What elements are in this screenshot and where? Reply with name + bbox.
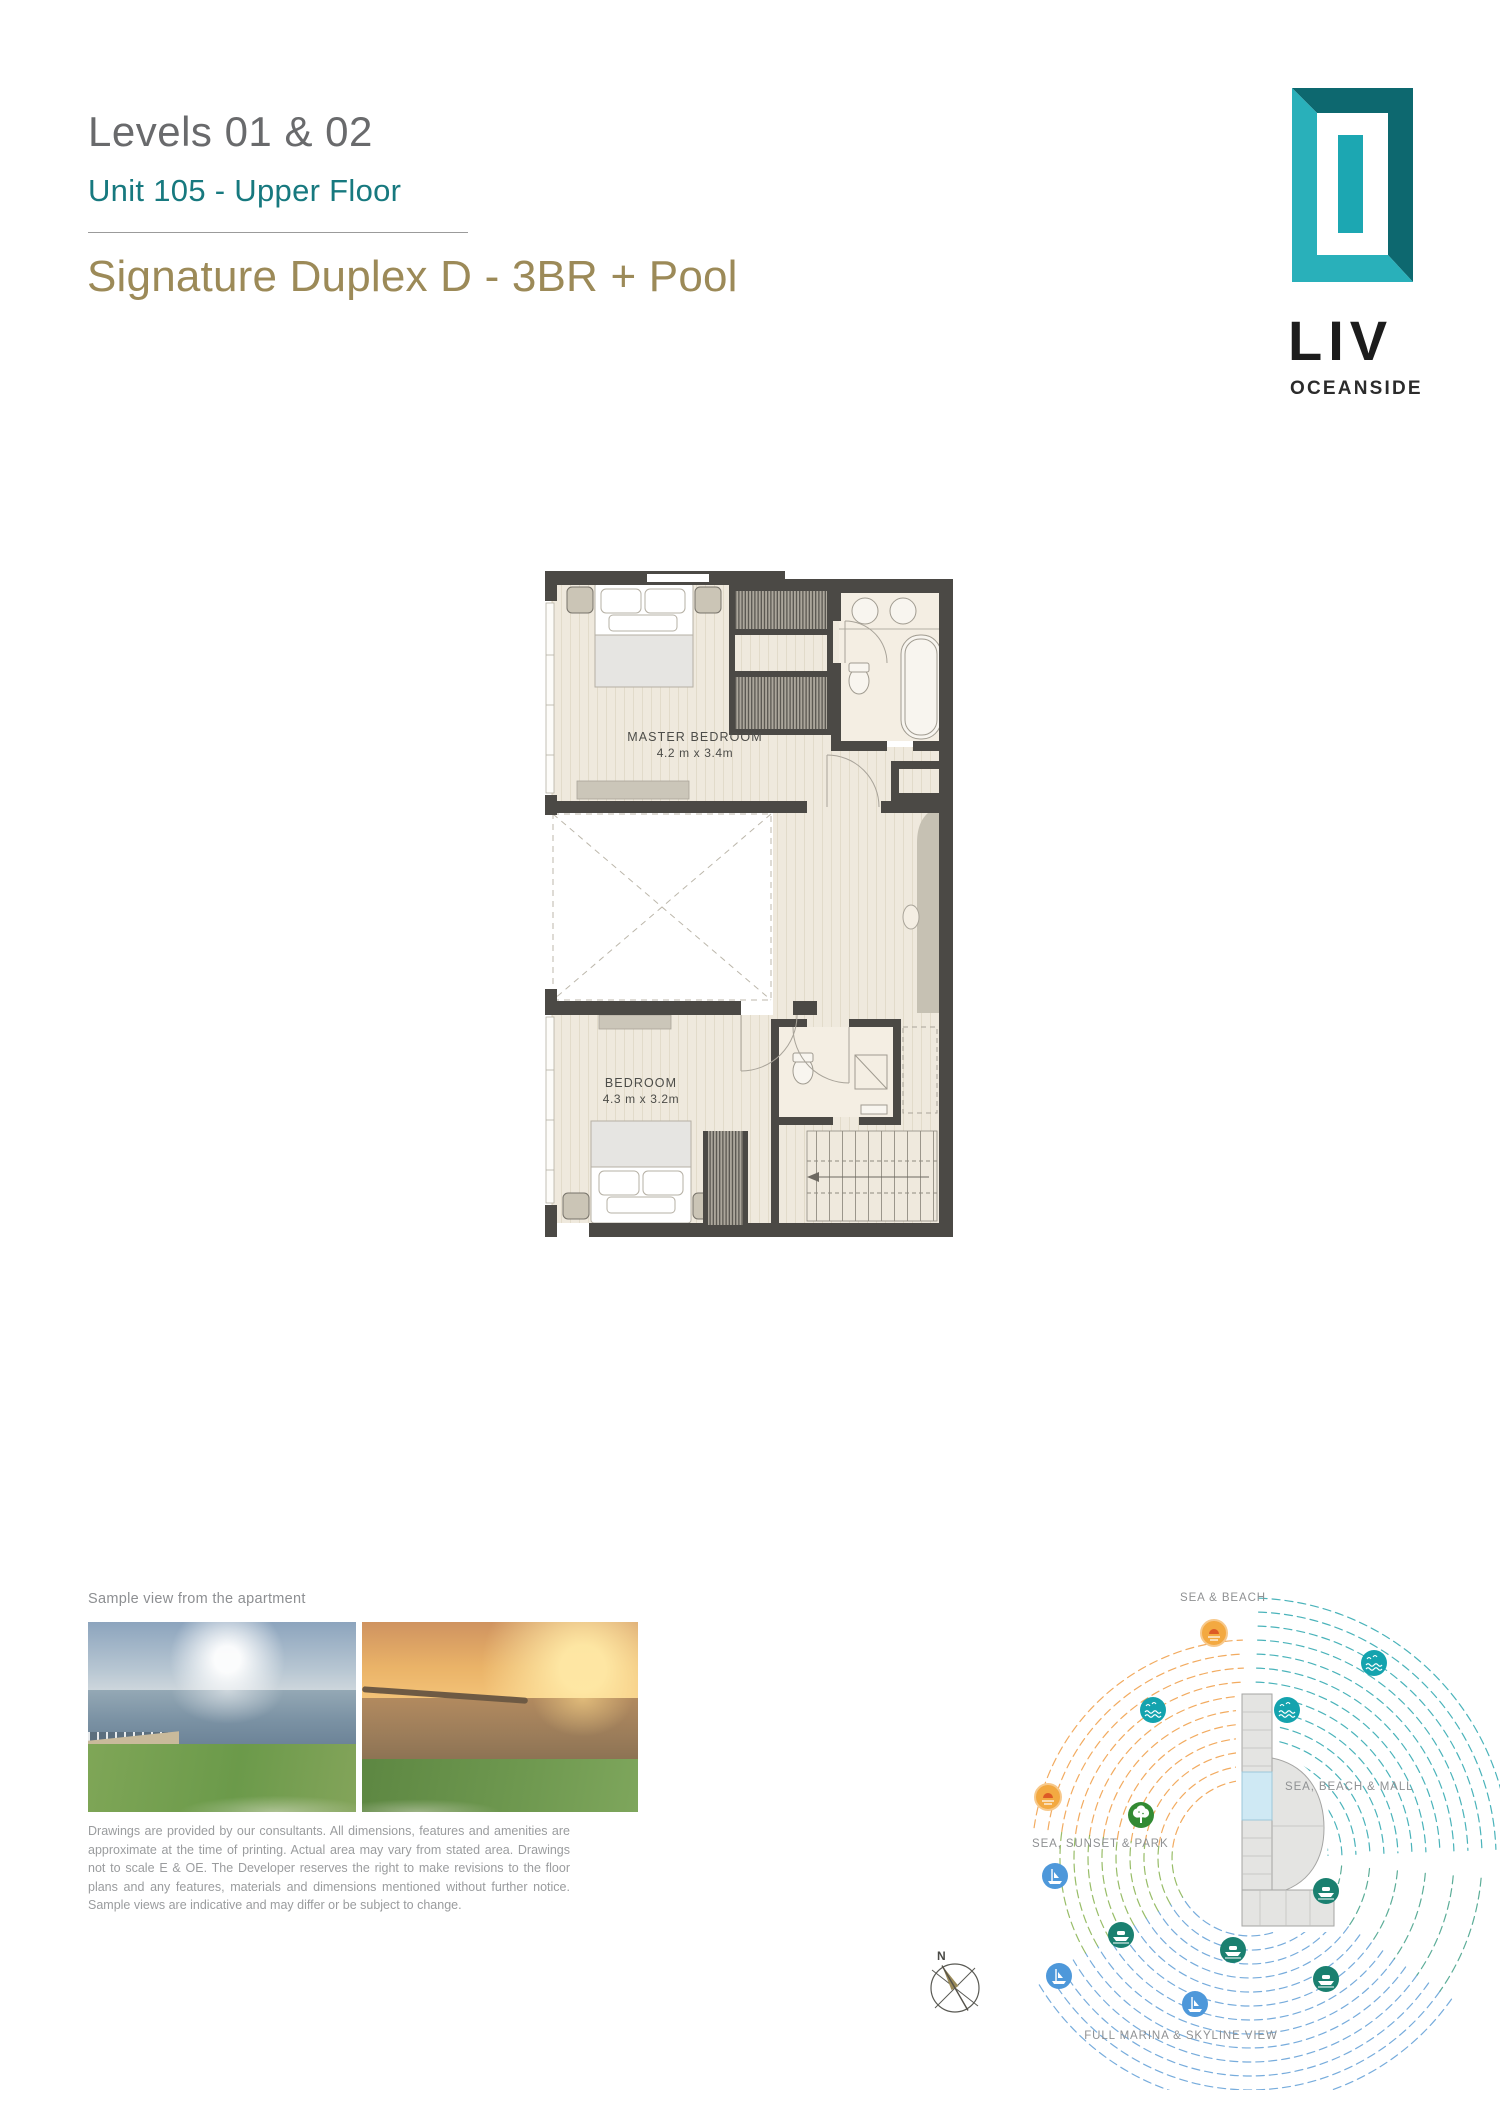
day-sky [88, 1622, 356, 1690]
stairs [807, 1131, 937, 1221]
compass-north-label: N [937, 1949, 946, 1963]
label-sea-beach-mall: SEA, BEACH & MALL [1285, 1781, 1413, 1793]
disclaimer-text: Drawings are provided by our consultants… [88, 1822, 570, 1915]
vanity-icon [861, 1105, 887, 1114]
marina-skyline-icon [1041, 1862, 1069, 1890]
shelf [599, 1015, 671, 1029]
bedroom-dims: 4.3 m x 3.2m [603, 1092, 680, 1106]
yacht-icon [1312, 1877, 1340, 1905]
plan-title: Signature Duplex D - 3BR + Pool [87, 252, 738, 302]
unit-heading: Unit 105 - Upper Floor [88, 173, 401, 209]
highlighted-unit [1242, 1772, 1272, 1820]
sunset-icon [1034, 1783, 1062, 1811]
sea-wave-icon [1139, 1696, 1167, 1724]
yacht-icon [1219, 1936, 1247, 1964]
day-park [88, 1744, 356, 1812]
sink-icon [890, 598, 916, 624]
brand-subname: OCEANSIDE [1290, 378, 1423, 400]
sun-beach-icon [1200, 1619, 1228, 1647]
sea-wave-icon [1360, 1649, 1388, 1677]
sunset-park [362, 1759, 638, 1812]
label-full-marina-skyline: FULL MARINA & SKYLINE VIEW [1056, 2030, 1306, 2042]
sunset-sea [362, 1698, 638, 1759]
sink-icon [852, 598, 878, 624]
bedroom-label: BEDROOM [605, 1076, 677, 1090]
sea-arcs-green-teal [1325, 1866, 1481, 1991]
tree-park-icon [1127, 1801, 1155, 1829]
marina-skyline-icon [1181, 1990, 1209, 2018]
liv-logo-mark [1292, 88, 1413, 282]
sunset-sky [362, 1622, 638, 1698]
basin-feature [903, 905, 919, 929]
sample-view-photo-sunset [362, 1622, 638, 1812]
brand-name: LIV [1288, 308, 1416, 373]
yacht-icon [1107, 1921, 1135, 1949]
label-sea-sunset-park: SEA, SUNSET & PARK [1032, 1838, 1169, 1850]
floor-plan: MASTER BEDROOM 4.2 m x 3.4m BEDROOM 4.3 … [543, 565, 957, 1240]
label-sea-beach: SEA & BEACH [1120, 1592, 1326, 1604]
master-bedroom-label: MASTER BEDROOM [627, 730, 763, 744]
header-divider [88, 232, 468, 233]
site-map: N [920, 1590, 1500, 2090]
master-bedroom-dims: 4.2 m x 3.4m [657, 746, 734, 760]
bathtub-icon [901, 635, 941, 739]
sample-view-photo-day [88, 1622, 356, 1812]
bench-rug [577, 781, 689, 799]
brochure-page: Levels 01 & 02 Unit 105 - Upper Floor Si… [0, 0, 1500, 2121]
sea-wave-icon [1273, 1696, 1301, 1724]
sample-view-caption: Sample view from the apartment [88, 1591, 306, 1607]
void-double-height [553, 814, 771, 1000]
compass-icon: N [931, 1949, 979, 2012]
levels-heading: Levels 01 & 02 [88, 108, 373, 156]
yacht-icon [1312, 1965, 1340, 1993]
marina-skyline-icon [1045, 1962, 1073, 1990]
